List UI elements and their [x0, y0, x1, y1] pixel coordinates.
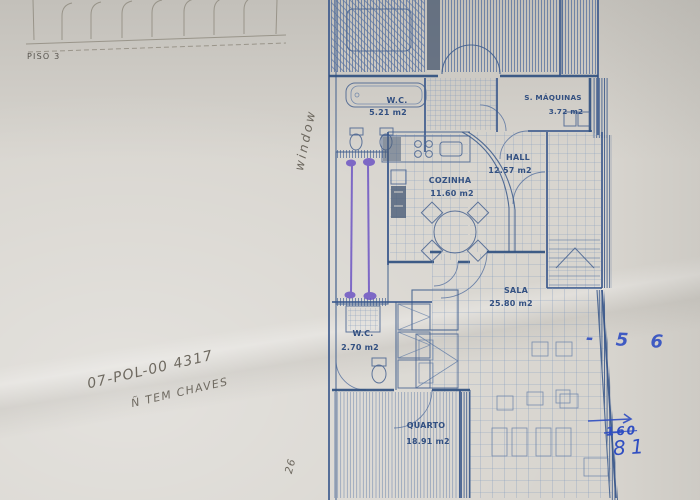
room-label-cozinha: COZINHA [429, 176, 472, 185]
handwritten-final-value: 81 [612, 434, 649, 460]
room-area-cozinha: 11.60 m2 [430, 189, 474, 198]
fridge-icon [391, 186, 406, 218]
floor-label: PISO 3 [27, 52, 60, 61]
room-area-hall: 12.57 m2 [488, 166, 532, 175]
room-quarto: QUARTO 18.91 m2 [332, 390, 470, 498]
room-label-wc-upper: W.C. [387, 96, 408, 105]
room-area-sala: 25.80 m2 [489, 299, 533, 308]
toilet-lower-icon [372, 358, 386, 383]
wardrobes [398, 304, 430, 388]
room-area-quarto: 18.91 m2 [406, 437, 450, 446]
corridor-tiles [427, 78, 497, 130]
floor-plan-drawing: PISO 3 [0, 0, 700, 500]
room-label-wc-lower: W.C. [353, 329, 374, 338]
room-label-quarto: QUARTO [407, 421, 446, 430]
room-area-smaquinas: 3.72 m2 [549, 107, 584, 116]
marker-highlight [346, 159, 376, 299]
staircase [547, 132, 612, 288]
light-shaft [336, 150, 388, 306]
room-wc-lower: W.C. 2.70 m2 [332, 302, 432, 390]
handwritten-measure-note: - 5 6 [586, 328, 672, 353]
floorplan-photo: PISO 3 [0, 0, 700, 500]
room-label-smaquinas: S. MÁQUINAS [524, 93, 582, 102]
room-hall: HALL 12.57 m2 [470, 132, 545, 252]
room-label-hall: HALL [506, 153, 530, 162]
room-area-wc-upper: 5.21 m2 [369, 108, 407, 117]
room-label-sala: SALA [504, 286, 529, 295]
wall-stub [427, 0, 440, 70]
toilet-icon [350, 128, 363, 150]
elevation-sketch: PISO 3 [26, 0, 286, 61]
room-area-wc-lower: 2.70 m2 [341, 343, 379, 352]
